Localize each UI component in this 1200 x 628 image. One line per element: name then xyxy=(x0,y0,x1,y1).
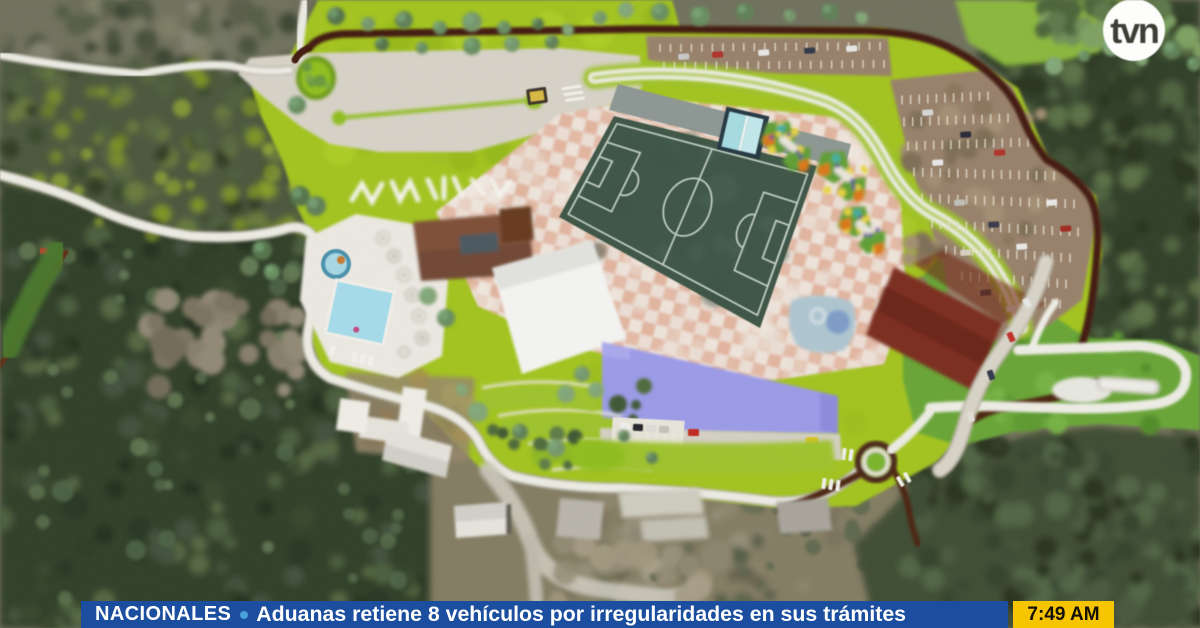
svg-text:tvn: tvn xyxy=(1110,10,1158,51)
